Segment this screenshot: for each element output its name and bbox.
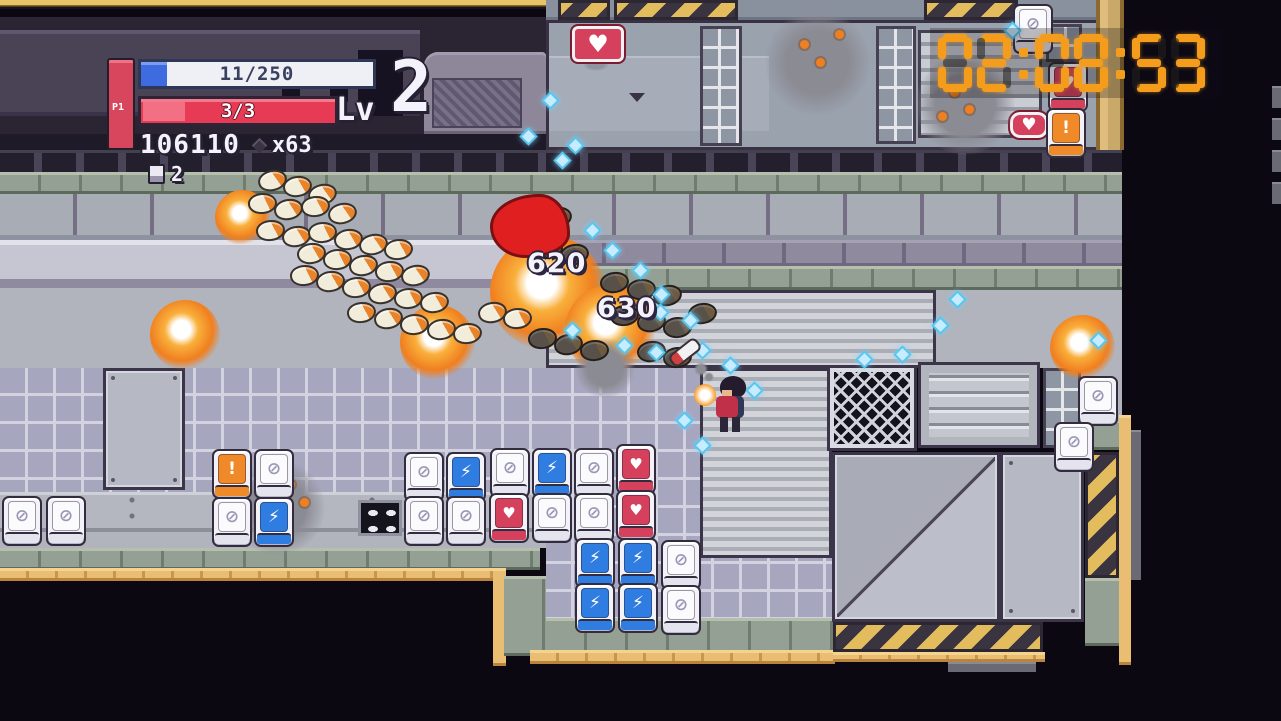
empty-icon: ⊘ <box>225 509 239 526</box>
alert-vending-machine: ! <box>212 449 252 499</box>
timer-colon <box>1113 34 1127 92</box>
timer-digit <box>1035 34 1069 92</box>
hazard-stripe-block <box>558 0 610 20</box>
platform-ledge <box>0 240 546 288</box>
damage-number: 630 <box>597 293 656 324</box>
score-value: 106110 <box>140 130 240 160</box>
player-leg <box>720 417 728 432</box>
empty-vending-machine: ⊘ <box>2 496 42 546</box>
hazard-stripe-block <box>614 0 738 20</box>
empty-vending-machine: ⊘ <box>446 496 486 546</box>
health-icon: ♥ <box>502 506 515 521</box>
energy-icon: ⚡ <box>268 509 280 526</box>
edge-tab <box>1272 182 1281 204</box>
level-value: 2 <box>390 46 432 128</box>
ember <box>835 30 844 39</box>
timer-digit <box>938 34 972 92</box>
slab-band <box>546 240 1122 266</box>
energy-vending-machine: ⚡ <box>575 538 615 588</box>
player-leg <box>732 417 740 432</box>
player-tag: P1 <box>107 58 135 150</box>
map-edge-border <box>530 650 835 664</box>
player-label: P1 <box>112 102 124 113</box>
player-jacket <box>716 396 744 418</box>
empty-vending-machine: ⊘ <box>532 493 572 543</box>
empty-icon: ⊘ <box>267 461 281 478</box>
floor-grate <box>358 500 402 536</box>
energy-vending-machine: ⚡ <box>575 583 615 633</box>
hazard-border <box>833 622 1043 652</box>
alert-vending-machine: ! <box>1046 108 1086 158</box>
empty-vending-machine: ⊘ <box>1078 376 1118 426</box>
timer-digit <box>1132 34 1166 92</box>
heart-sign: ♥ <box>1010 112 1048 138</box>
xp-bar: 11/250 <box>138 59 376 89</box>
empty-icon: ⊘ <box>59 508 73 525</box>
health-vending-machine: ♥ <box>616 444 656 494</box>
map-edge-border <box>833 652 1045 662</box>
level-label: Lv <box>336 90 375 128</box>
empty-vending-machine: ⊘ <box>1054 422 1094 472</box>
hp-bar-value: 3/3 <box>141 100 335 122</box>
empty-icon: ⊘ <box>417 464 431 481</box>
empty-vending-machine: ⊘ <box>574 493 614 543</box>
energy-icon: ⚡ <box>632 595 644 612</box>
pickup-counter: 2 <box>148 162 183 186</box>
ember <box>300 498 309 507</box>
health-vending-machine: ♥ <box>616 490 656 540</box>
energy-vending-machine: ⚡ <box>532 448 572 498</box>
empty-vending-machine: ⊘ <box>404 452 444 502</box>
empty-vending-machine: ⊘ <box>46 496 86 546</box>
health-icon: ♥ <box>629 457 642 472</box>
xp-bar-value: 11/250 <box>141 63 373 85</box>
empty-icon: ⊘ <box>1091 388 1105 405</box>
empty-icon: ⊘ <box>674 552 688 569</box>
empty-vending-machine: ⊘ <box>404 496 444 546</box>
wall-vent-mark <box>629 93 645 102</box>
health-icon: ♥ <box>629 503 642 518</box>
window-grid <box>700 26 742 146</box>
map-edge-border <box>0 568 500 581</box>
pickup-icon <box>148 164 165 184</box>
heart-emblem-sign: ♥ <box>572 26 624 62</box>
hazard-stripe-block <box>924 0 1018 20</box>
player-character <box>708 376 752 436</box>
edge-tab <box>1272 118 1281 140</box>
empty-vending-machine: ⊘ <box>661 585 701 635</box>
empty-icon: ⊘ <box>15 508 29 525</box>
timer-digit <box>1074 34 1108 92</box>
energy-vending-machine: ⚡ <box>446 452 486 502</box>
energy-icon: ⚡ <box>589 550 601 567</box>
mission-timer <box>938 34 1210 92</box>
empty-icon: ⊘ <box>587 505 601 522</box>
damage-number: 620 <box>527 248 586 279</box>
energy-vending-machine: ⚡ <box>618 538 658 588</box>
ember <box>816 58 825 67</box>
empty-vending-machine: ⊘ <box>661 540 701 590</box>
empty-vending-machine: ⊘ <box>490 448 530 498</box>
edge-tab <box>1272 150 1281 172</box>
map-edge-border <box>1119 415 1131 665</box>
mesh-grate <box>830 368 914 448</box>
timer-digit <box>977 34 1011 92</box>
green-tile-block <box>1085 578 1123 646</box>
green-tile-column <box>504 576 546 656</box>
window-grid <box>876 26 916 144</box>
ember <box>800 40 809 49</box>
game-viewport[interactable]: ♥ ♥ <box>0 0 1281 721</box>
heart-icon: ♥ <box>587 30 609 58</box>
hud: P1 11/250 3/3 Lv 2 106110 x63 2 <box>104 54 464 204</box>
alert-icon: ! <box>228 461 236 478</box>
edge-strip <box>948 662 1036 672</box>
empty-icon: ⊘ <box>545 505 559 522</box>
hp-bar: 3/3 <box>138 96 338 126</box>
pickup-count: 2 <box>171 162 183 186</box>
score-row: 106110 x63 <box>140 130 312 160</box>
heart-icon: ♥ <box>1021 115 1036 135</box>
energy-vending-machine: ⚡ <box>254 497 294 547</box>
gold-trim-line <box>0 0 546 9</box>
empty-icon: ⊘ <box>674 597 688 614</box>
explosion <box>1050 315 1115 380</box>
alert-icon: ! <box>1062 120 1070 137</box>
metal-panel <box>103 368 185 490</box>
empty-icon: ⊘ <box>417 508 431 525</box>
energy-icon: ⚡ <box>589 595 601 612</box>
energy-vending-machine: ⚡ <box>618 583 658 633</box>
muzzle-flash <box>694 384 716 406</box>
ember <box>938 112 947 121</box>
empty-vending-machine: ⊘ <box>254 449 294 499</box>
vent-grate <box>918 362 1040 448</box>
metal-panel-diagonal <box>832 452 1000 622</box>
edge-tab <box>1272 86 1281 108</box>
energy-icon: ⚡ <box>460 464 472 481</box>
empty-icon: ⊘ <box>587 460 601 477</box>
empty-icon: ⊘ <box>503 460 517 477</box>
health-vending-machine: ♥ <box>489 493 529 543</box>
ember <box>965 105 974 114</box>
edge-notch-column <box>1131 430 1141 580</box>
explosion <box>150 300 220 370</box>
metal-panel <box>1000 452 1084 622</box>
empty-vending-machine: ⊘ <box>574 448 614 498</box>
empty-icon: ⊘ <box>459 508 473 525</box>
kill-multiplier: x63 <box>272 133 312 158</box>
energy-icon: ⚡ <box>546 460 558 477</box>
empty-icon: ⊘ <box>1067 434 1081 451</box>
energy-icon: ⚡ <box>632 550 644 567</box>
empty-vending-machine: ⊘ <box>212 497 252 547</box>
timer-digit <box>1171 34 1205 92</box>
gem-icon <box>252 137 268 153</box>
timer-colon <box>1016 34 1030 92</box>
